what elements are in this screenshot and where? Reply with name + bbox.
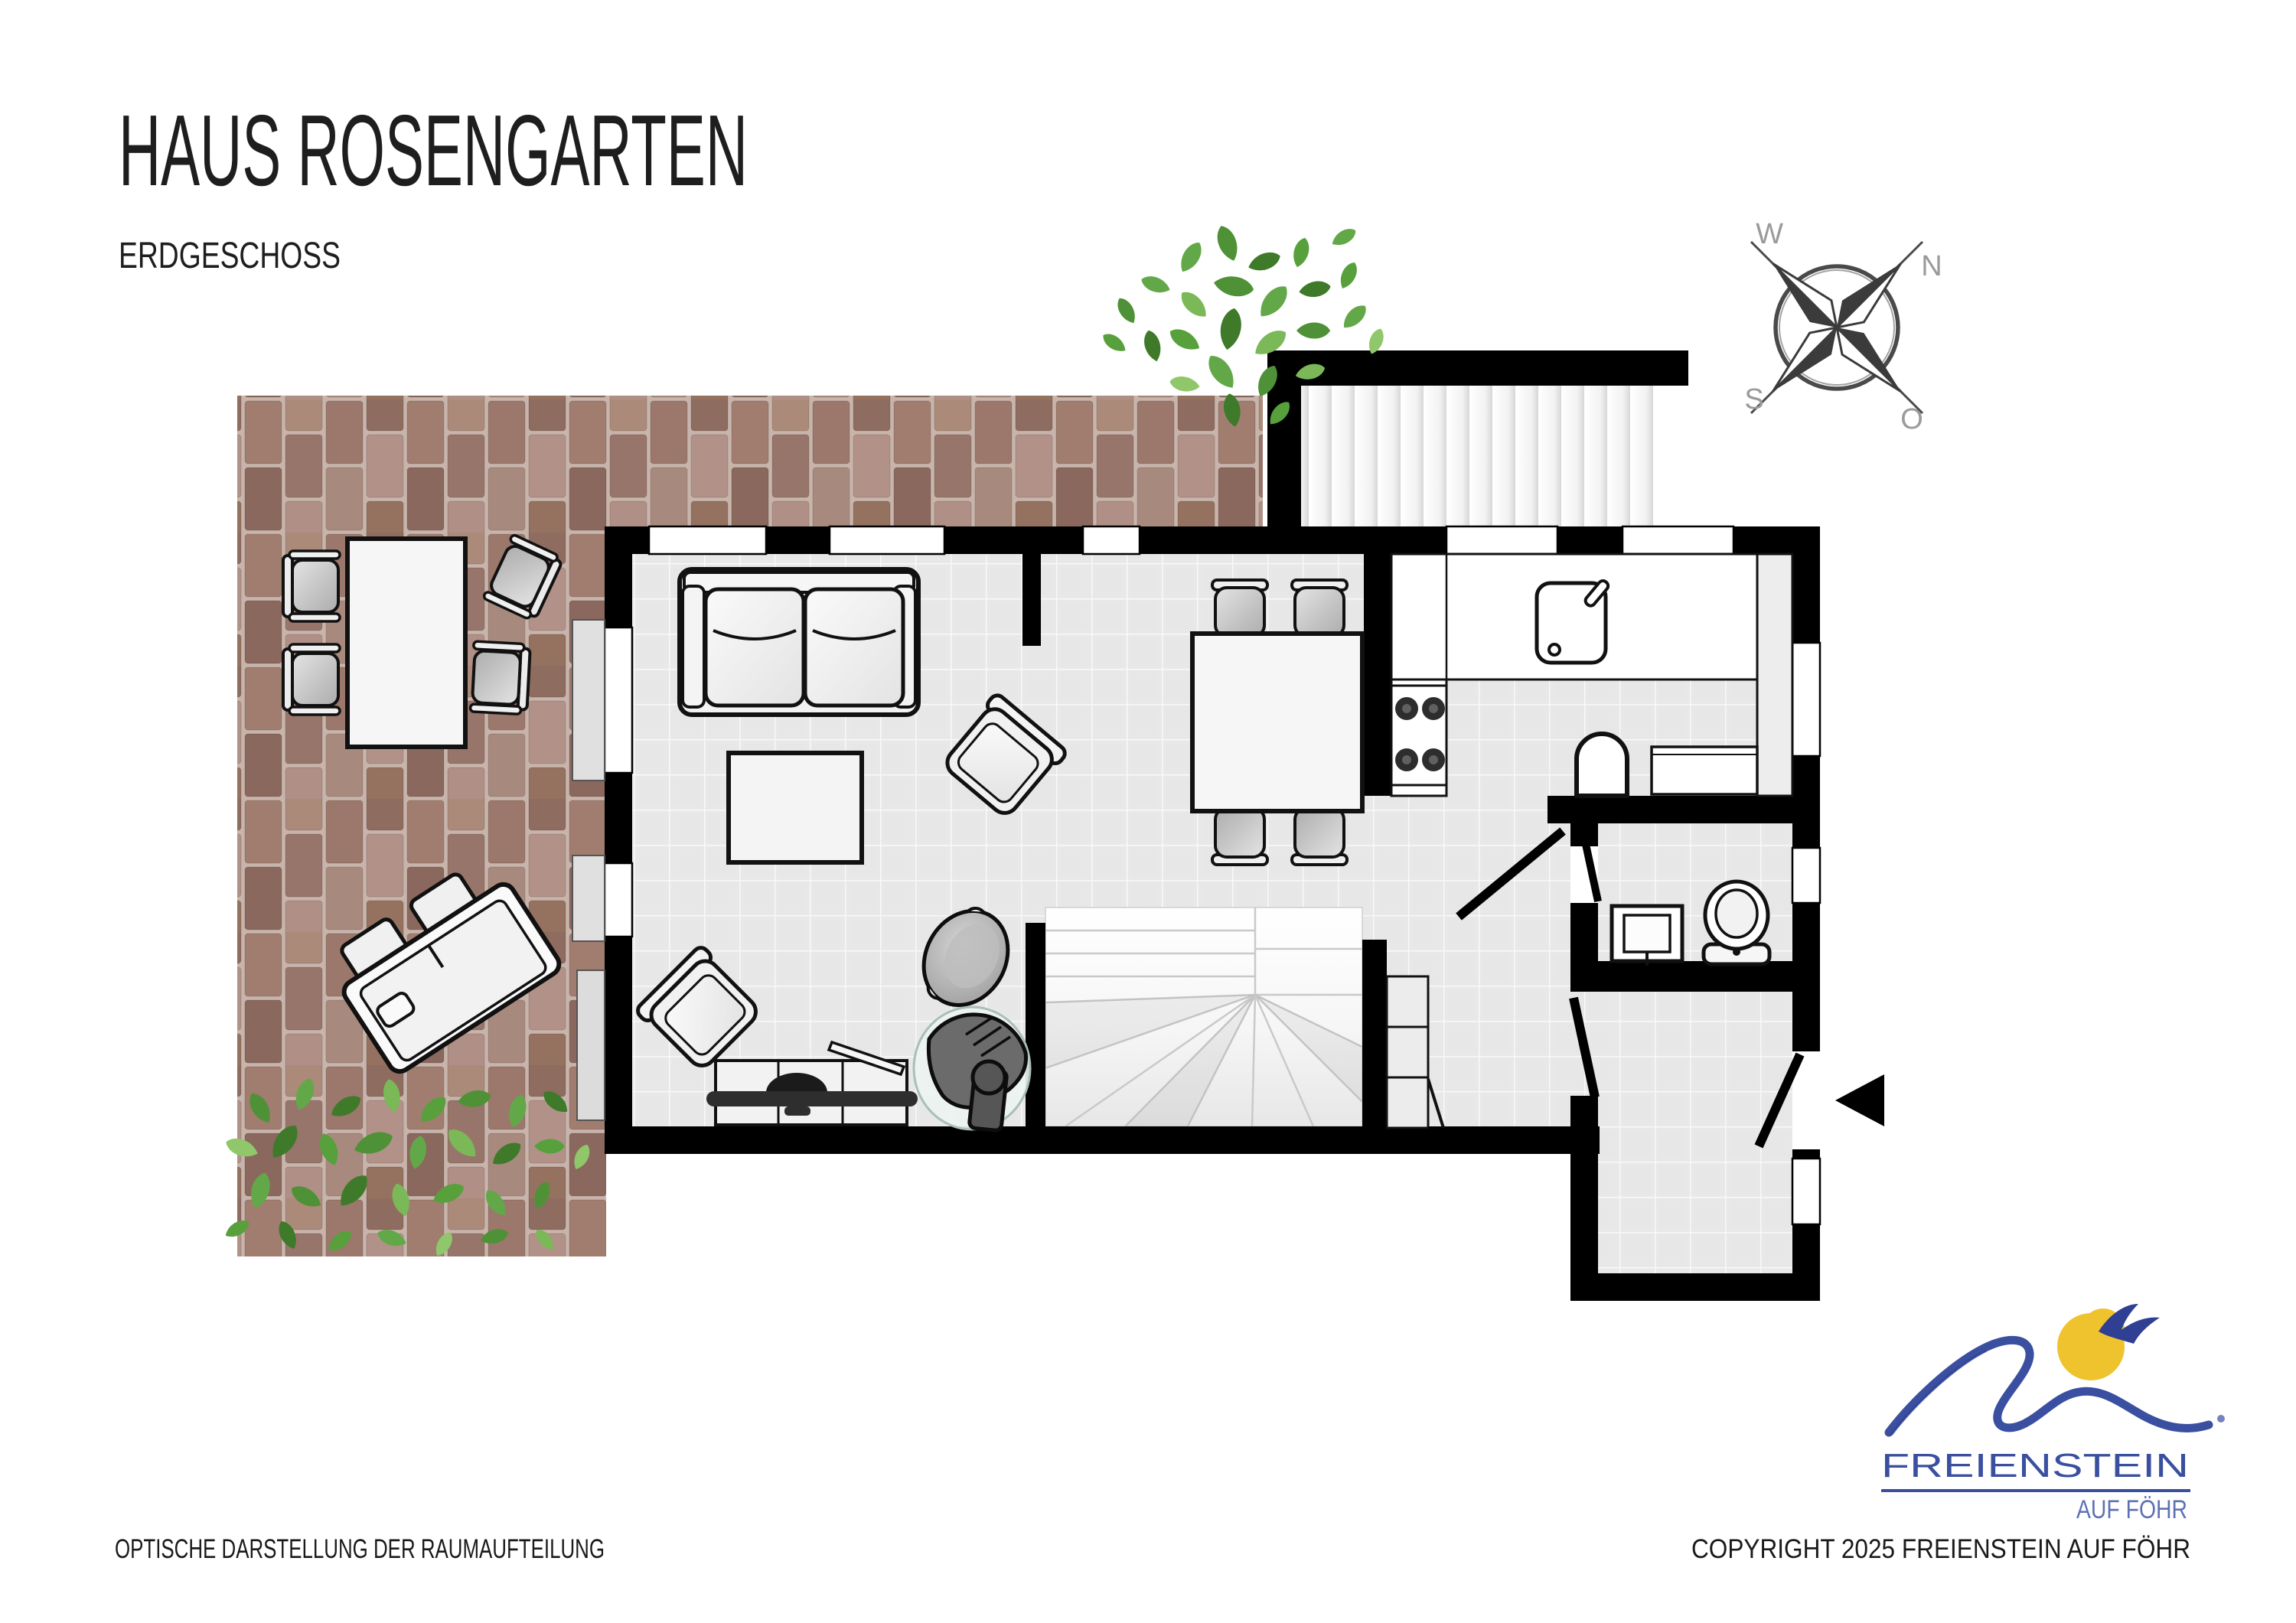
compass-rose: W N S O [1744, 218, 1942, 435]
staircase [1045, 908, 1362, 1126]
compass-label-north: N [1921, 250, 1942, 282]
rail [706, 1091, 918, 1106]
wall-stairs-right [1362, 940, 1387, 1126]
window-north-kitchen [1446, 526, 1557, 554]
deck-boards [1301, 386, 1653, 531]
page-subtitle: ERDGESCHOSS [119, 236, 341, 276]
wall-hall-left [1570, 1096, 1598, 1301]
compass-label-east: O [1900, 403, 1923, 435]
coffee-table [729, 753, 862, 862]
wall-west [605, 526, 632, 1154]
deck-wall-top [1267, 350, 1688, 386]
boiler-column [1577, 734, 1627, 796]
logo-tagline: AUF FÖHR [2076, 1495, 2187, 1524]
outdoor-table [347, 539, 465, 747]
page-title: HAUS ROSENGARTEN [119, 94, 748, 207]
wall-south-living [605, 1126, 1600, 1154]
wall-stairs-left [1026, 923, 1045, 1126]
window-west-1 [605, 627, 632, 773]
toilet [1704, 882, 1769, 964]
floorplan-page: W N S O HAUS ROSENGARTEN ERDGESCHOSS FRE… [0, 0, 2296, 1623]
window-north-2 [830, 526, 944, 554]
logo-name: FREIENSTEIN [1881, 1447, 2189, 1484]
window-west-2 [605, 863, 632, 937]
outdoor-chair [470, 641, 530, 715]
wall-bath-left [1570, 903, 1598, 961]
outdoor-chair [283, 644, 340, 715]
dining-chair [1292, 808, 1347, 865]
entry-arrow-icon [1835, 1074, 1884, 1126]
compass-label-south: S [1744, 383, 1763, 416]
shutter-panel [577, 970, 605, 1120]
dining-chair [1212, 580, 1267, 637]
sill-west-2 [572, 855, 605, 941]
floorplan-drawing: W N S O HAUS ROSENGARTEN ERDGESCHOSS FRE… [0, 0, 2296, 1623]
exterior-deck [1267, 350, 1688, 531]
door-bathroom [1584, 837, 1598, 901]
compass-star [1762, 253, 1911, 402]
wood-stove [914, 1007, 1030, 1131]
sofa [680, 569, 918, 715]
window-east-kitchen [1792, 643, 1820, 756]
header: HAUS ROSENGARTEN ERDGESCHOSS [119, 94, 748, 276]
dining-chair [1292, 580, 1347, 637]
wall-kitchen-divider [1364, 554, 1391, 796]
window-east-hall [1792, 1159, 1820, 1224]
bathroom-sink [1612, 906, 1682, 966]
wall-kitchen-south [1548, 796, 1792, 823]
window-east-bathroom [1792, 848, 1820, 903]
hall-floor [1570, 992, 1792, 1273]
window-north-kitchen-2 [1623, 526, 1733, 554]
window-sills [572, 620, 605, 1120]
footer-note-right: COPYRIGHT 2025 FREIENSTEIN AUF FÖHR [1691, 1534, 2190, 1564]
window-north-1 [649, 526, 766, 554]
outdoor-chair [283, 551, 340, 621]
footer: OPTISCHE DARSTELLUNG DER RAUMAUFTEILUNG … [115, 1534, 2190, 1564]
brand-logo: FREIENSTEIN AUF FÖHR [1881, 1304, 2225, 1524]
footer-note-left: OPTISCHE DARSTELLUNG DER RAUMAUFTEILUNG [115, 1534, 605, 1564]
compass-label-west: W [1756, 218, 1783, 250]
sill-west-1 [572, 620, 605, 781]
dining-table [1192, 634, 1362, 811]
cooktop [1391, 686, 1446, 785]
kitchen-sink [1537, 579, 1610, 663]
wall-south-hall [1570, 1273, 1820, 1301]
kitchen-tall-cabinet [1757, 554, 1792, 796]
wall-stub-north [1022, 554, 1041, 646]
dining-chair [1212, 808, 1267, 865]
window-north-3 [1083, 526, 1140, 554]
